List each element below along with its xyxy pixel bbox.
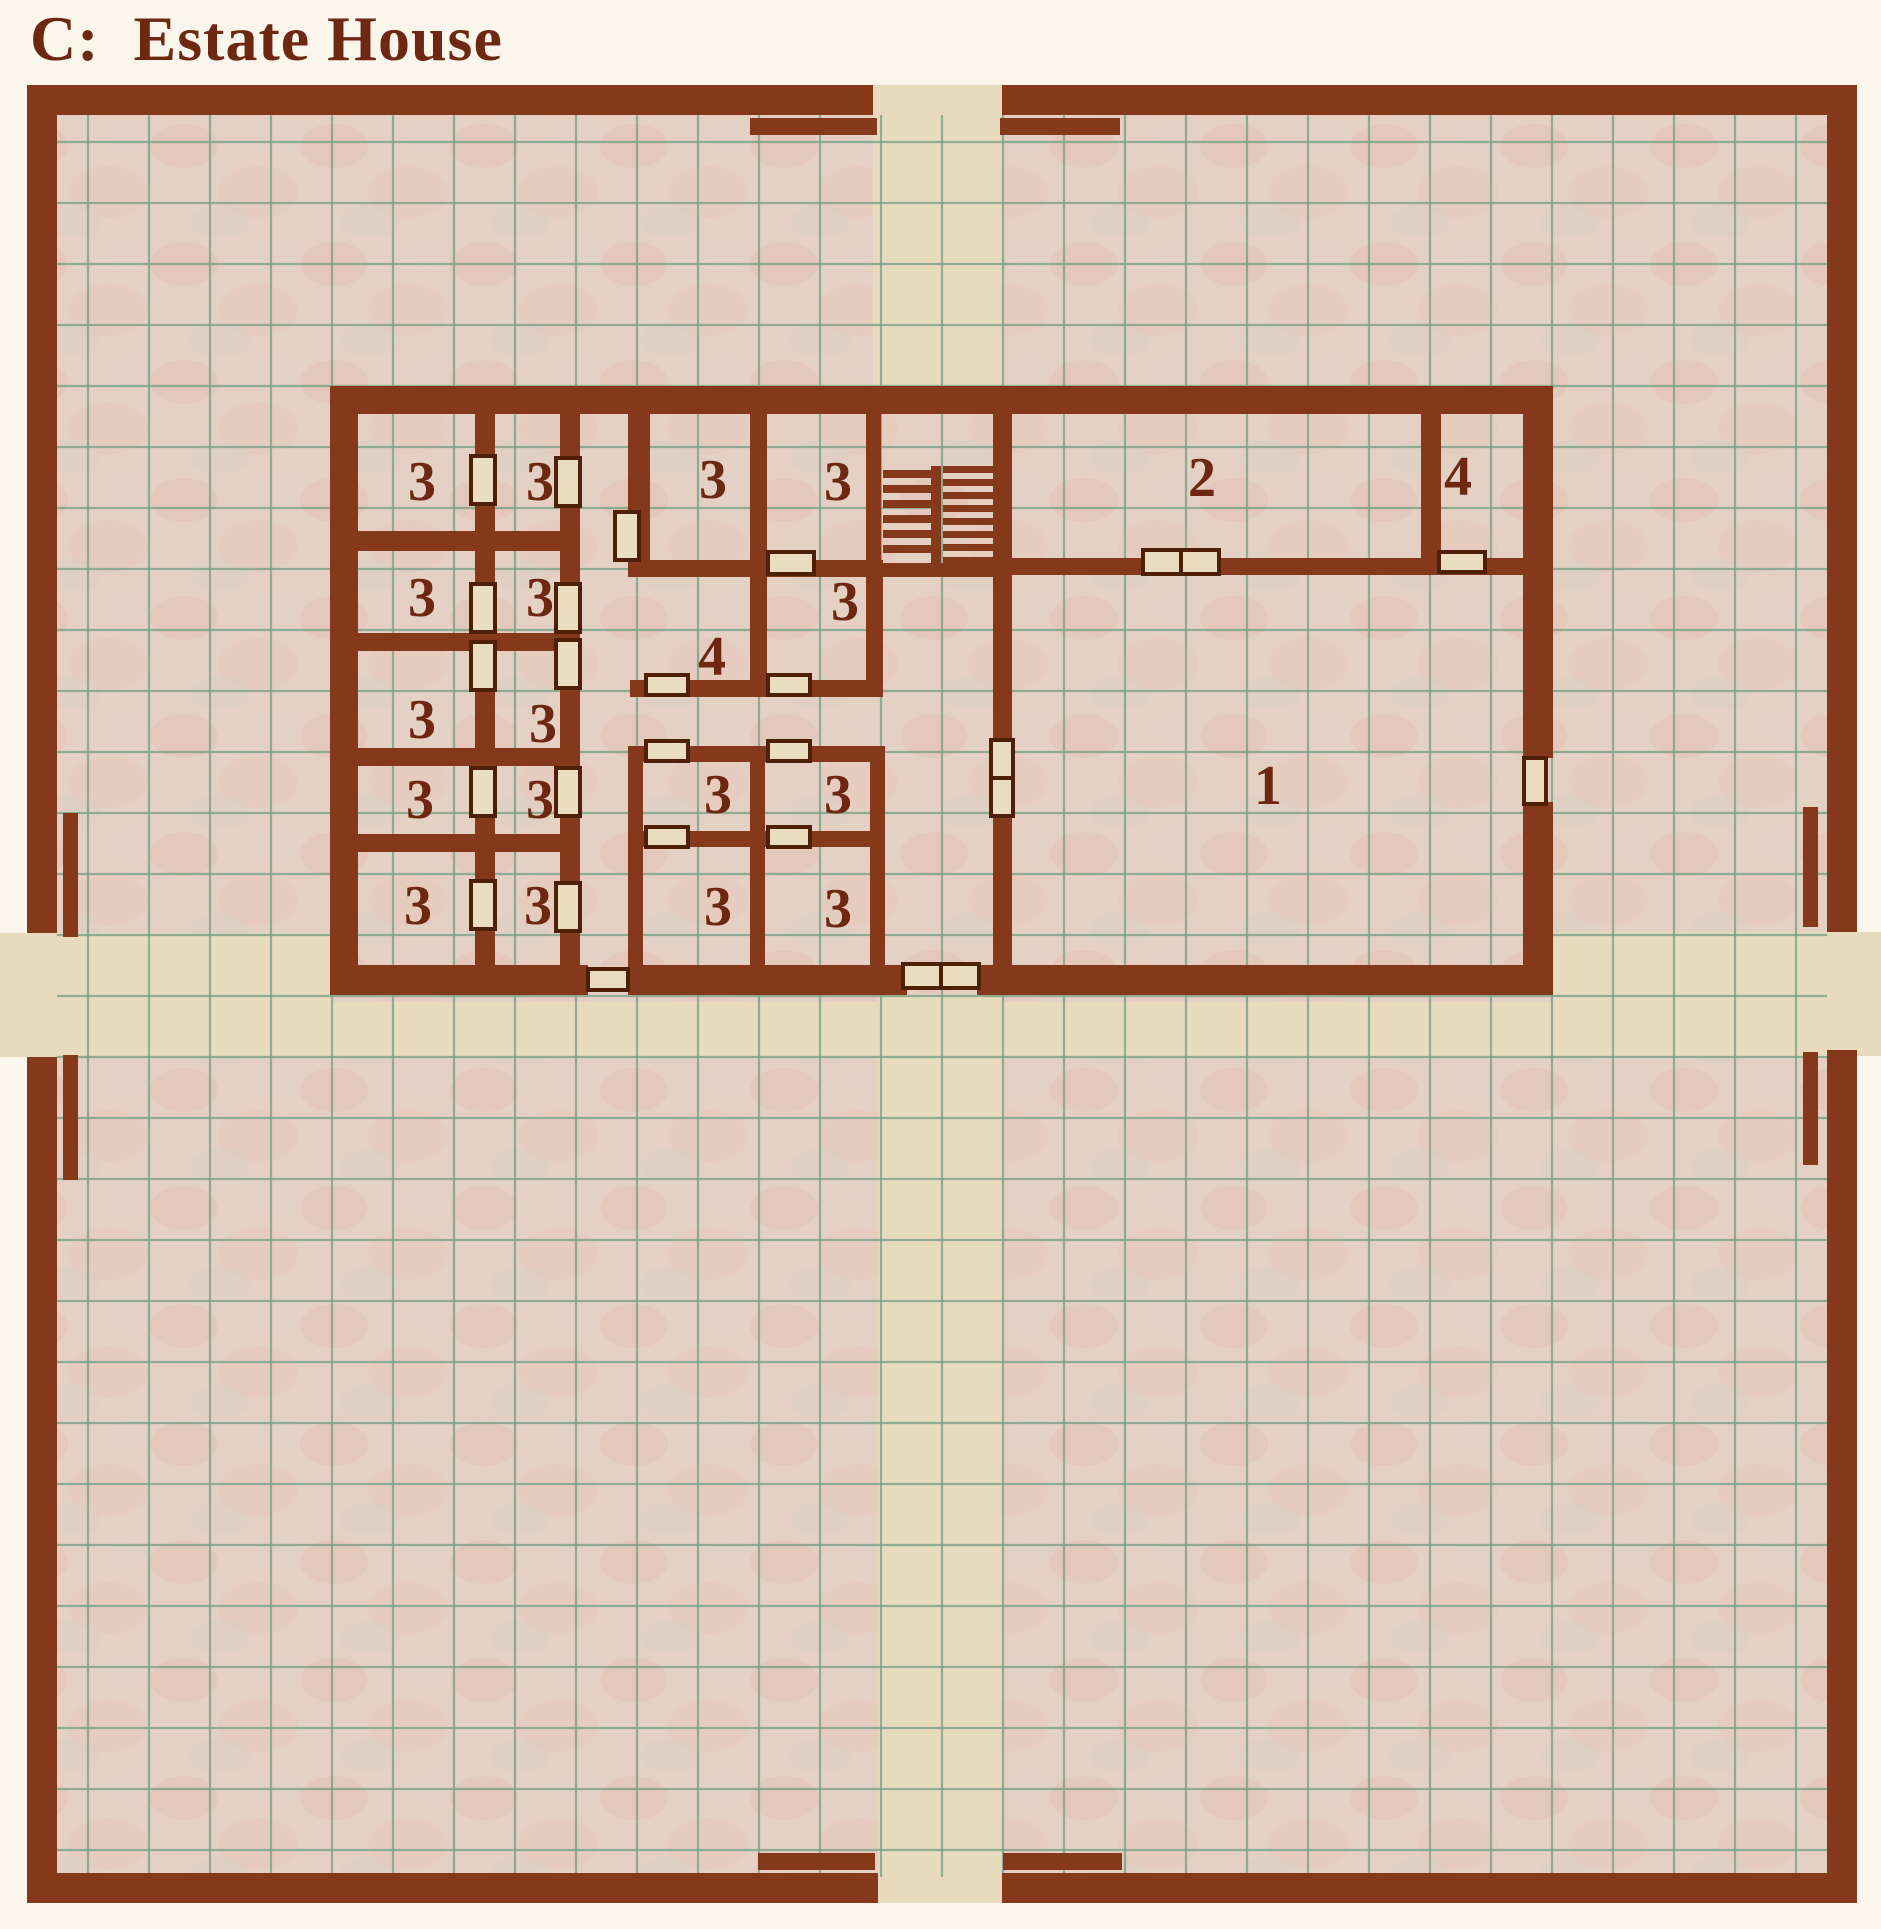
- outer-wall-segment: [27, 85, 57, 933]
- room-label: 3: [824, 878, 852, 940]
- room-label: 4: [1444, 446, 1472, 508]
- door: [471, 584, 495, 632]
- outer-wall-segment: [1827, 85, 1857, 932]
- building-wall: [1523, 802, 1553, 995]
- road: [878, 997, 1002, 1903]
- road: [1553, 932, 1881, 1056]
- outer-wall-segment: [27, 85, 873, 115]
- building-wall: [866, 563, 1012, 577]
- door: [471, 642, 495, 690]
- room-label: 3: [824, 764, 852, 826]
- door: [1143, 550, 1181, 574]
- door: [471, 768, 495, 816]
- door: [646, 675, 688, 695]
- gate-baffle-wall: [1803, 1052, 1818, 1165]
- gate-baffle-wall: [758, 1853, 875, 1870]
- room-label: 3: [526, 451, 554, 513]
- door: [1181, 550, 1219, 574]
- building-wall: [1421, 386, 1441, 558]
- stair-tread: [883, 545, 931, 553]
- building-wall: [993, 386, 1012, 965]
- stair-tread: [883, 485, 931, 493]
- stair-tread: [943, 479, 993, 486]
- outer-wall-segment: [27, 1873, 878, 1903]
- gate-baffle-wall: [750, 118, 877, 135]
- building-wall: [330, 965, 588, 995]
- building-wall: [330, 531, 580, 551]
- room-label: 3: [704, 764, 732, 826]
- outer-wall-segment: [27, 1057, 57, 1903]
- door: [768, 552, 814, 574]
- building-wall: [330, 386, 358, 995]
- door: [1439, 552, 1485, 572]
- room-label: 3: [526, 769, 554, 831]
- stair-tread: [943, 544, 993, 551]
- stair-tread: [943, 531, 993, 538]
- stair-tread: [943, 466, 993, 473]
- door: [768, 741, 810, 761]
- building-wall: [750, 746, 765, 965]
- door: [646, 827, 688, 847]
- gate-baffle-wall: [1003, 1853, 1122, 1870]
- building-wall: [866, 414, 881, 580]
- door: [768, 675, 810, 695]
- stair-tread: [883, 500, 931, 508]
- door: [991, 778, 1013, 816]
- room-label: 3: [408, 451, 436, 513]
- gate-baffle-wall: [1000, 118, 1120, 135]
- room-label: 1: [1254, 755, 1282, 817]
- stair-tread: [943, 557, 993, 564]
- gate-baffle-wall: [63, 813, 78, 937]
- door: [941, 964, 979, 988]
- door: [556, 584, 580, 632]
- room-label: 3: [408, 689, 436, 751]
- building-wall: [750, 414, 767, 577]
- stair-tread: [883, 530, 931, 538]
- stair-tread: [883, 470, 931, 478]
- door: [1524, 758, 1546, 804]
- door: [615, 512, 639, 560]
- gate-baffle-wall: [1803, 807, 1818, 927]
- room-label: 3: [408, 567, 436, 629]
- building-wall: [628, 746, 643, 965]
- door: [471, 881, 495, 929]
- building-wall: [977, 965, 1553, 995]
- building-wall: [870, 746, 885, 965]
- building-wall: [750, 577, 767, 697]
- door: [556, 883, 580, 931]
- stair-tread: [943, 518, 993, 525]
- building-wall: [1523, 386, 1553, 758]
- door: [588, 969, 628, 990]
- floor-plan-drawing: 333333333333343333241: [0, 0, 1881, 1929]
- door: [556, 768, 580, 816]
- door: [991, 740, 1013, 778]
- map-title: C: Estate House: [30, 2, 503, 76]
- stair-divider: [931, 466, 941, 563]
- outer-wall-segment: [1002, 85, 1857, 115]
- outer-wall-segment: [1827, 1050, 1857, 1903]
- stair-tread: [943, 505, 993, 512]
- building-wall: [330, 386, 1553, 414]
- building-wall: [330, 834, 580, 852]
- door: [646, 741, 688, 761]
- room-label: 3: [824, 451, 852, 513]
- room-label: 3: [699, 449, 727, 511]
- stair-tread: [883, 515, 931, 523]
- outer-wall-segment: [1002, 1873, 1857, 1903]
- door: [556, 458, 580, 506]
- room-label: 3: [406, 769, 434, 831]
- building-wall: [866, 577, 883, 697]
- door: [556, 640, 580, 688]
- estate-house-floor-plan: C: Estate House 333333333333343333241: [0, 0, 1881, 1929]
- road: [873, 85, 1002, 392]
- room-label: 3: [529, 693, 557, 755]
- room-label: 3: [526, 567, 554, 629]
- building-wall: [628, 965, 907, 995]
- stair-tread: [943, 492, 993, 499]
- building-wall: [330, 633, 580, 651]
- room-label: 3: [704, 876, 732, 938]
- door: [471, 456, 495, 504]
- gate-baffle-wall: [63, 1055, 78, 1180]
- room-label: 3: [831, 571, 859, 633]
- room-label: 3: [524, 875, 552, 937]
- room-label: 2: [1188, 447, 1216, 509]
- room-label: 4: [698, 626, 726, 688]
- door: [768, 827, 810, 847]
- door: [903, 964, 941, 988]
- room-label: 3: [404, 875, 432, 937]
